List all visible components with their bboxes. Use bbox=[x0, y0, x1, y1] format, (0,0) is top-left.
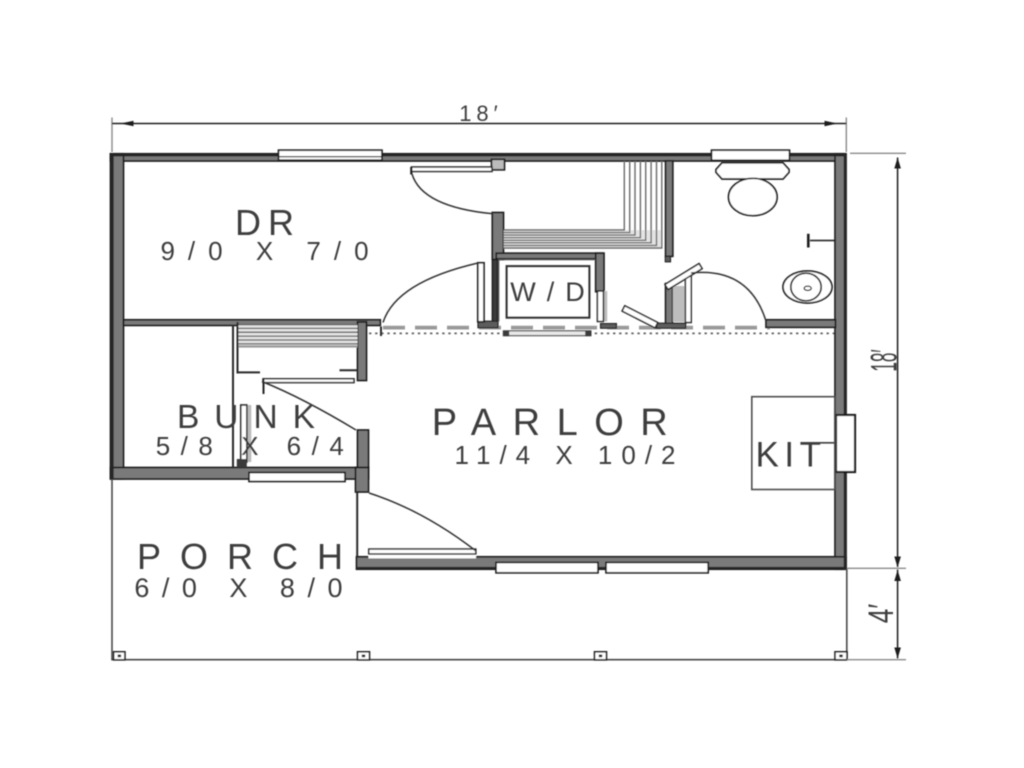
svg-text:PORCH: PORCH bbox=[137, 536, 362, 577]
svg-text:18′: 18′ bbox=[459, 101, 503, 126]
svg-text:9/0 X 7/0: 9/0 X 7/0 bbox=[160, 236, 381, 266]
svg-text:5/8 X 6/4: 5/8 X 6/4 bbox=[156, 431, 355, 461]
svg-text:18′: 18′ bbox=[864, 349, 905, 371]
svg-text:11/4 X 10/2: 11/4 X 10/2 bbox=[454, 440, 684, 470]
svg-text:4′: 4′ bbox=[861, 604, 901, 624]
svg-text:PARLOR: PARLOR bbox=[432, 402, 684, 444]
svg-text:W/D: W/D bbox=[510, 277, 595, 307]
svg-text:6/0 X 8/0: 6/0 X 8/0 bbox=[134, 573, 355, 603]
svg-text:KIT: KIT bbox=[756, 436, 827, 475]
